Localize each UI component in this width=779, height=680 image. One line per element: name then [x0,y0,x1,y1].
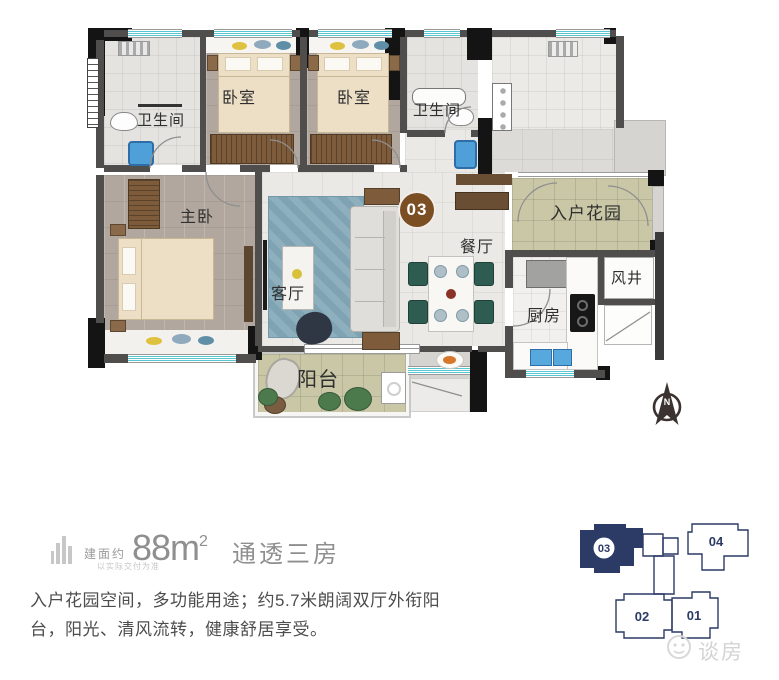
nightstand [110,224,126,236]
wall [478,346,505,352]
fish-decor [352,40,369,49]
nightstand [389,55,400,71]
wall [655,232,664,360]
wall [616,36,624,128]
ac-platform [604,305,652,345]
area-prefix: 建面约 [84,545,126,562]
key-plan-unit-01-label: 01 [687,608,701,623]
wall [407,130,445,137]
sink-icon [128,141,154,166]
sink-icon [553,349,572,366]
wall [104,354,128,363]
watermark-logo-icon [664,632,694,664]
window [128,354,236,363]
fishbowl-decor [436,351,464,369]
fish-decor [172,334,191,344]
window [424,29,460,38]
wall [300,37,307,165]
fish-decor [254,40,271,49]
shell-decor [330,42,345,50]
window [214,29,292,38]
disclaimer-text: 以实际交付为准 [97,561,160,572]
sink-icon [530,349,552,366]
room-label-dining-room: 餐厅 [460,233,494,257]
floor-plan: 卫生间 卧室 卧室 卫生间 入户花园 主卧 客厅 餐厅 厨房 风井 阳台 03 … [0,0,779,500]
svg-text:N: N [664,397,671,407]
fish-decor [374,41,389,50]
watermark-text: 谈房 [698,636,744,666]
washing-machine [381,372,406,404]
key-plan: 03 04 02 01 [570,510,770,642]
wall [182,165,206,172]
wardrobe [210,134,294,164]
column [88,318,105,368]
room-label-bedroom-1: 卧室 [222,84,256,108]
description-line-2: 台，阳光、清风流转，健康舒居享受。 [30,615,460,644]
compass-icon: N [646,380,688,428]
room-label-bathroom-1: 卫生间 [137,109,185,130]
column [467,28,492,60]
wardrobe [128,179,160,229]
tv-icon [263,240,267,310]
room-label-master-bedroom: 主卧 [180,203,214,227]
dresser [244,246,253,322]
wall [255,172,262,346]
wall [400,37,407,133]
plant [318,392,341,411]
stove-icon [570,294,595,332]
wall [104,165,150,172]
topright-wall-mass [614,120,666,176]
room-label-kitchen: 厨房 [527,302,561,326]
laundry-lobby-floor [492,129,614,172]
wall [200,37,206,165]
page: 卫生间 卧室 卧室 卫生间 入户花园 主卧 客厅 餐厅 厨房 风井 阳台 03 … [0,0,779,680]
wall [298,165,374,172]
key-plan-unit-03-label: 03 [598,543,610,555]
garden-threshold [456,174,512,185]
master-bed [118,238,214,320]
window [556,29,610,38]
fish-decor [276,41,291,50]
garden-glass-line [518,172,648,177]
room-label-bedroom-2: 卧室 [337,84,371,108]
towel-bar-icon [138,104,182,107]
room-label-balcony: 阳台 [297,363,339,392]
window [408,366,470,375]
wall [505,250,664,257]
description-line-1: 入户花园空间，多功能用途；约5.7米朗阔双厅外衔阳 [30,586,460,615]
towel-radiator-icon [87,58,99,128]
room-label-air-shaft: 风井 [611,267,643,288]
plant [258,388,278,406]
wall [258,346,304,352]
fish-decor [198,336,214,345]
wall [96,175,104,323]
window [526,369,574,378]
shelf-icon [118,41,150,56]
area-superscript: 2 [199,533,208,550]
plant [344,387,372,411]
wall [505,326,513,372]
balcony-side-lower [407,378,470,412]
shell-decor [232,42,247,50]
column [470,350,487,412]
room-label-entry-garden: 入户花园 [550,199,622,224]
key-plan-unit-02-label: 02 [635,609,649,624]
building-logo-icon [50,534,76,566]
toilet-icon [110,112,138,131]
column [648,170,664,186]
shell-decor [146,337,162,345]
dining-chair [408,300,428,324]
column [478,118,492,180]
wall [240,165,270,172]
dining-chair [474,262,494,286]
unit-number-badge: 03 [398,191,436,229]
side-table [364,188,400,205]
window [318,29,392,38]
nightstand [110,320,126,332]
room-label-bathroom-2: 卫生间 [413,99,461,120]
wall [471,130,478,137]
nightstand [207,55,218,71]
dining-table [428,256,474,332]
sofa [350,206,400,332]
dining-chair [408,262,428,286]
shelf-icon [548,41,578,57]
wall [400,165,407,172]
wall [236,354,256,363]
side-table [362,332,400,350]
dining-chair [474,300,494,324]
window [128,29,182,38]
room-label-living-room: 客厅 [271,280,305,304]
cabinet-shelf-icon [492,83,512,131]
sideboard [455,192,509,210]
nightstand [290,55,301,71]
area-title: 通透三房 [232,534,340,569]
key-plan-unit-04-label: 04 [709,534,724,549]
wardrobe [310,134,392,164]
wall [598,257,604,303]
fridge [526,260,570,288]
sink-icon [454,140,477,169]
nightstand [308,55,319,71]
wall [505,257,513,288]
